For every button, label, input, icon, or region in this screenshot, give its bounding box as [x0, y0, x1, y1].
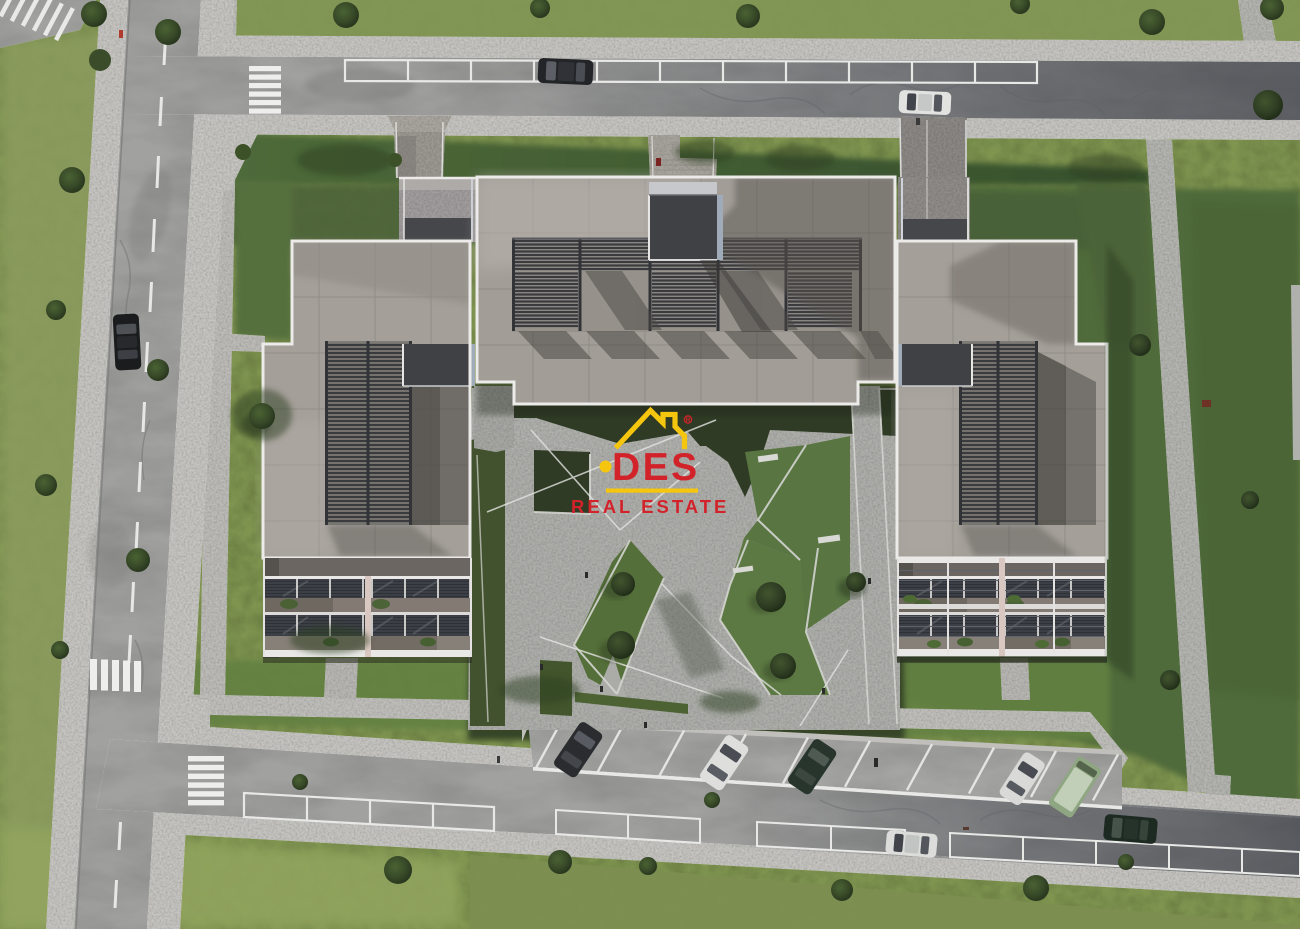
svg-text:REAL ESTATE: REAL ESTATE	[571, 496, 729, 517]
svg-text:R: R	[686, 417, 691, 424]
svg-text:DES: DES	[612, 446, 700, 489]
